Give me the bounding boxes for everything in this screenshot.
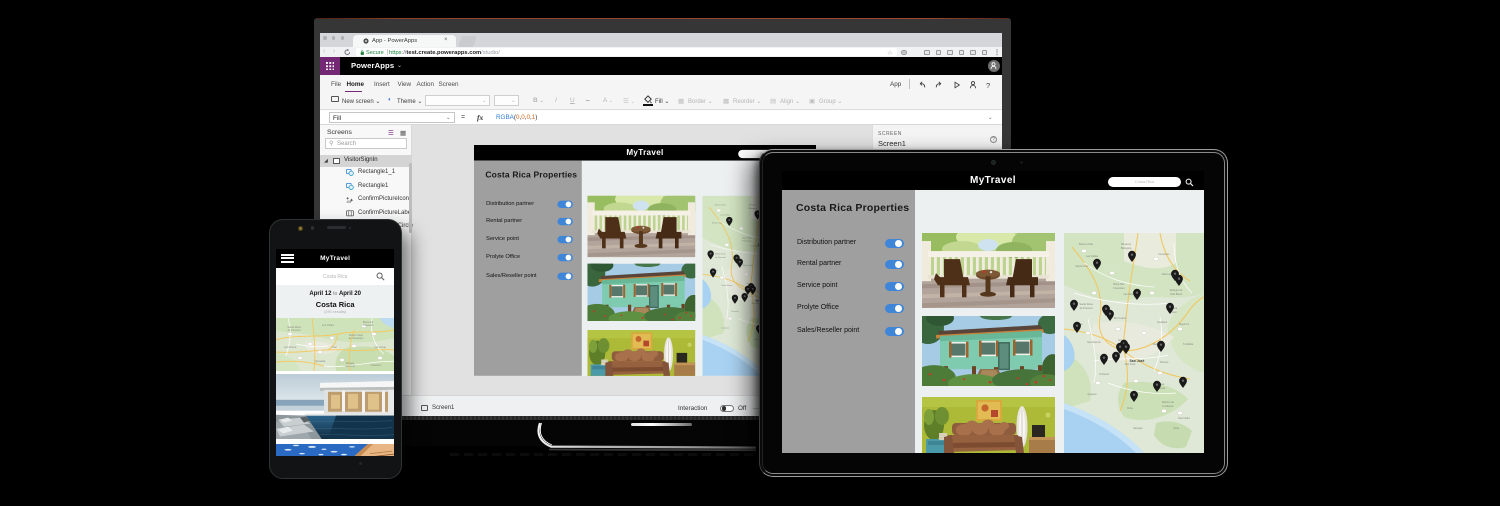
svg-text:de Pocosol: de Pocosol xyxy=(715,257,726,259)
svg-text:La Fortuna: La Fortuna xyxy=(284,345,297,349)
svg-text:Colorado: Colorado xyxy=(363,323,374,327)
svg-text:Santa Rosa: Santa Rosa xyxy=(715,252,727,255)
svg-text:Biologica: Biologica xyxy=(749,208,758,210)
svg-text:Las Horqu: Las Horqu xyxy=(374,345,387,349)
svg-text:Buena Vista: Buena Vista xyxy=(1079,242,1093,246)
svg-text:San Ramon: San Ramon xyxy=(721,284,733,286)
svg-text:nacional: nacional xyxy=(345,364,355,368)
svg-text:Puriscal: Puriscal xyxy=(1099,372,1109,376)
svg-text:San José: San José xyxy=(1130,359,1145,363)
svg-text:Los Chiles: Los Chiles xyxy=(322,323,335,327)
svg-text:Guacimo: Guacimo xyxy=(371,363,382,367)
svg-text:Quesada: Quesada xyxy=(315,359,326,363)
svg-text:la Muerte: la Muerte xyxy=(1163,404,1174,408)
svg-text:de Pocosol: de Pocosol xyxy=(288,328,301,332)
svg-text:San Ramon: San Ramon xyxy=(1087,340,1101,344)
svg-text:Biologica: Biologica xyxy=(1121,246,1132,250)
svg-text:Buena Vista: Buena Vista xyxy=(715,203,727,206)
svg-text:de Pocosol: de Pocosol xyxy=(1080,306,1093,310)
svg-text:Reserva: Reserva xyxy=(749,204,758,206)
svg-text:Francisco: Francisco xyxy=(743,240,753,242)
svg-text:de Sarapiqui: de Sarapiqui xyxy=(349,336,364,340)
svg-text:Macizo de: Macizo de xyxy=(1162,400,1174,404)
svg-text:Quepos: Quepos xyxy=(1087,392,1097,396)
svg-text:Vital: Vital xyxy=(332,345,337,349)
svg-text:Santa Cruz: Santa Cruz xyxy=(1076,264,1090,268)
svg-text:Siquirres: Siquirres xyxy=(1179,322,1190,326)
svg-text:San Isidro: San Isidro xyxy=(1178,416,1190,420)
svg-text:Boca San: Boca San xyxy=(743,237,753,239)
svg-text:Las Delias: Las Delias xyxy=(1086,254,1099,258)
svg-text:Refugio de: Refugio de xyxy=(1170,288,1183,292)
svg-text:Vida Barra: Vida Barra xyxy=(1170,292,1183,296)
svg-text:Dota: Dota xyxy=(1127,406,1133,410)
svg-text:Rio Cuarto: Rio Cuarto xyxy=(1114,316,1127,320)
svg-text:Uvita: Uvita xyxy=(1173,426,1179,430)
svg-text:Turrialba: Turrialba xyxy=(1183,342,1194,346)
svg-text:Savegre: Savegre xyxy=(1133,426,1143,430)
svg-text:Santa Rosa: Santa Rosa xyxy=(1079,302,1093,306)
svg-text:Guapiles: Guapiles xyxy=(1157,320,1168,324)
svg-text:Tarrazu: Tarrazu xyxy=(1160,360,1169,364)
svg-text:Quepos: Quepos xyxy=(722,327,729,329)
svg-text:Rio Cuarto: Rio Cuarto xyxy=(743,264,754,267)
svg-text:Greytown: Greytown xyxy=(1158,252,1170,256)
svg-text:Las Delias: Las Delias xyxy=(720,214,730,216)
svg-text:Santa Cruz: Santa Cruz xyxy=(712,221,723,224)
svg-text:Boca San: Boca San xyxy=(1113,282,1125,286)
svg-text:Francisco: Francisco xyxy=(1113,286,1125,290)
svg-text:Reserva: Reserva xyxy=(1121,242,1131,246)
svg-text:Puriscal: Puriscal xyxy=(731,311,739,313)
